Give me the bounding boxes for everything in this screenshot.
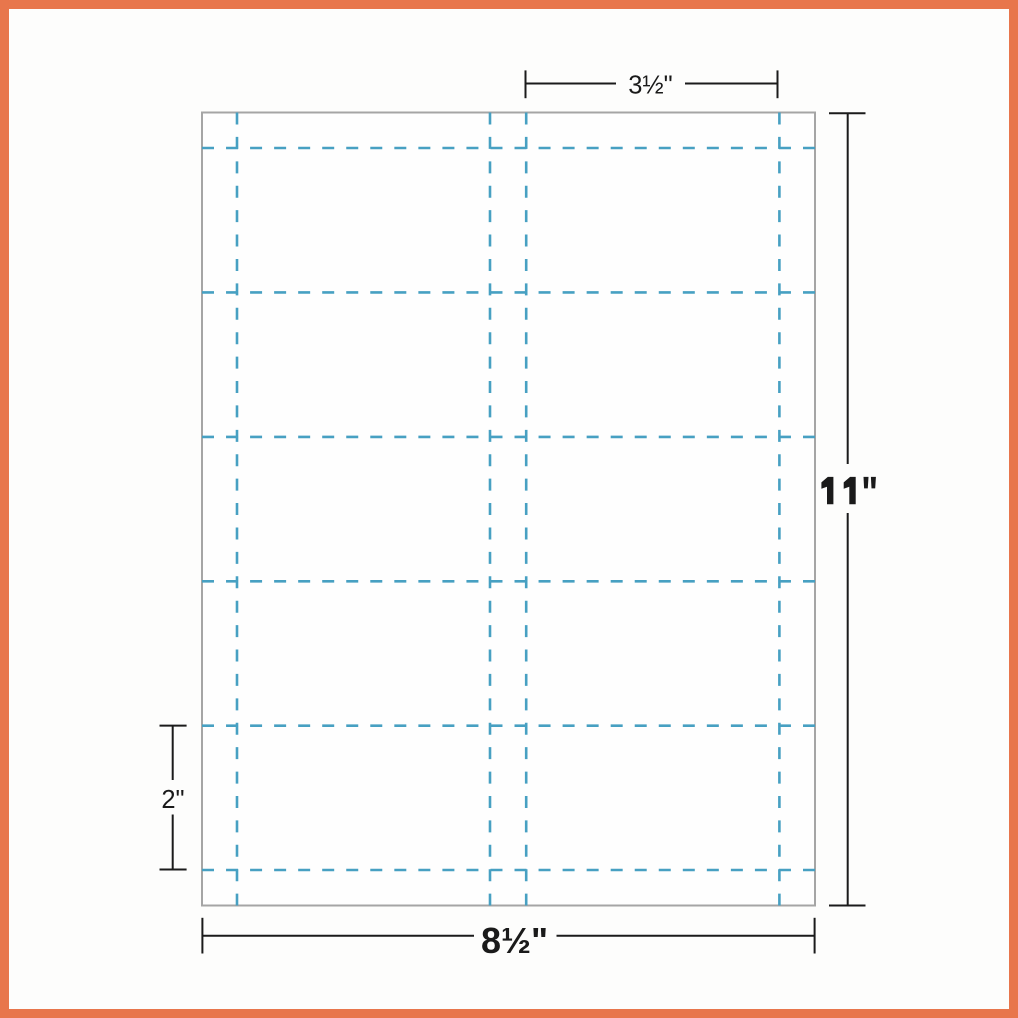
svg-text:2": 2" [161, 786, 184, 814]
svg-text:3½": 3½" [628, 72, 673, 100]
svg-text:8½": 8½" [481, 920, 548, 961]
